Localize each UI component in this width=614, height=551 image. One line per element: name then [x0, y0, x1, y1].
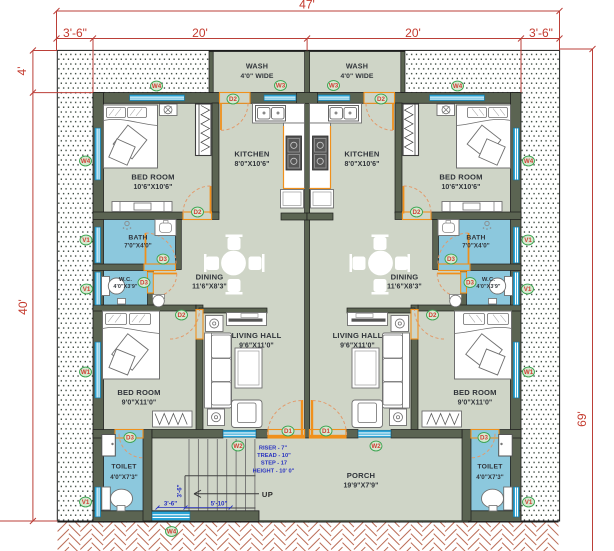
svg-text:W.C.: W.C. — [119, 277, 133, 283]
svg-text:D3: D3 — [159, 256, 167, 263]
svg-text:D3: D3 — [126, 435, 134, 442]
svg-text:W3: W3 — [329, 83, 339, 90]
svg-text:DINING: DINING — [196, 273, 224, 282]
svg-text:UP: UP — [262, 490, 273, 499]
svg-text:3'-6": 3'-6" — [63, 26, 87, 40]
svg-text:W4: W4 — [453, 83, 463, 90]
svg-text:4'0"X7'3": 4'0"X7'3" — [476, 474, 504, 481]
svg-text:10'6"X10'6": 10'6"X10'6" — [133, 184, 172, 191]
svg-text:W2: W2 — [371, 443, 381, 450]
svg-text:LIVING HALL: LIVING HALL — [232, 331, 282, 340]
svg-text:D3: D3 — [466, 280, 474, 287]
svg-text:D3: D3 — [447, 256, 455, 263]
svg-text:5'-10": 5'-10" — [211, 501, 228, 508]
svg-text:4'0"X3'9": 4'0"X3'9" — [476, 284, 501, 290]
svg-text:4'0"X3'9": 4'0"X3'9" — [113, 284, 138, 290]
svg-text:19'9"X7'9": 19'9"X7'9" — [343, 483, 378, 490]
svg-text:V1: V1 — [524, 286, 532, 293]
svg-text:W.C.: W.C. — [482, 277, 496, 283]
svg-text:9'0"X11'0": 9'0"X11'0" — [458, 400, 493, 407]
svg-text:4': 4' — [15, 67, 29, 76]
svg-text:7'0"X4'0": 7'0"X4'0" — [124, 243, 152, 250]
svg-text:4'0" WIDE: 4'0" WIDE — [341, 73, 374, 80]
svg-text:9'0"X11'0": 9'0"X11'0" — [122, 400, 157, 407]
svg-text:D2: D2 — [194, 209, 202, 216]
svg-text:V1: V1 — [524, 237, 532, 244]
svg-text:BATH: BATH — [128, 235, 147, 242]
svg-text:D2: D2 — [178, 312, 186, 319]
svg-text:7'0"X4'0": 7'0"X4'0" — [462, 243, 490, 250]
svg-text:RISER - 7": RISER - 7" — [259, 445, 288, 451]
svg-text:D2: D2 — [377, 96, 385, 103]
svg-text:W4: W4 — [524, 158, 534, 165]
svg-text:BED ROOM: BED ROOM — [117, 388, 160, 397]
svg-text:8'0"X10'6": 8'0"X10'6" — [344, 161, 379, 168]
svg-text:TOILET: TOILET — [111, 464, 137, 471]
svg-text:BED ROOM: BED ROOM — [453, 388, 496, 397]
svg-text:4'0"X7'3": 4'0"X7'3" — [110, 474, 138, 481]
svg-text:D3: D3 — [140, 280, 148, 287]
svg-text:V1: V1 — [82, 499, 90, 506]
svg-text:KITCHEN: KITCHEN — [234, 150, 269, 159]
svg-text:D3: D3 — [480, 435, 488, 442]
svg-text:D1: D1 — [284, 428, 292, 435]
svg-text:HEIGHT - 10' 0": HEIGHT - 10' 0" — [253, 468, 295, 474]
svg-text:W4: W4 — [81, 158, 91, 165]
svg-text:W3: W3 — [276, 83, 286, 90]
svg-text:W2: W2 — [233, 443, 243, 450]
svg-text:W1: W1 — [81, 369, 91, 376]
svg-text:PORCH: PORCH — [347, 471, 375, 480]
svg-text:LIVING HALL: LIVING HALL — [333, 331, 383, 340]
svg-text:W4: W4 — [167, 529, 177, 536]
svg-text:9'6"X11'0": 9'6"X11'0" — [340, 343, 375, 350]
svg-text:W4: W4 — [152, 83, 162, 90]
svg-text:V1: V1 — [83, 286, 91, 293]
svg-text:47': 47' — [299, 0, 315, 12]
svg-text:4'0" WIDE: 4'0" WIDE — [241, 73, 274, 80]
svg-text:V1: V1 — [525, 499, 533, 506]
svg-text:BATH: BATH — [466, 235, 485, 242]
svg-text:BED ROOM: BED ROOM — [439, 173, 482, 182]
svg-text:20': 20' — [405, 26, 421, 40]
svg-text:8'0"X10'6": 8'0"X10'6" — [234, 161, 269, 168]
svg-text:TOILET: TOILET — [477, 464, 503, 471]
svg-text:WASH: WASH — [346, 62, 368, 71]
svg-text:W1: W1 — [524, 369, 534, 376]
svg-text:3'-6": 3'-6" — [529, 26, 553, 40]
svg-text:D2: D2 — [413, 209, 421, 216]
svg-text:TREAD - 10": TREAD - 10" — [257, 453, 291, 459]
svg-text:69': 69' — [575, 411, 589, 427]
svg-text:9'6"X11'0": 9'6"X11'0" — [239, 343, 274, 350]
svg-text:40': 40' — [16, 299, 30, 315]
svg-text:WASH: WASH — [246, 62, 268, 71]
svg-text:DINING: DINING — [391, 273, 419, 282]
svg-text:D2: D2 — [429, 312, 437, 319]
svg-text:V1: V1 — [82, 237, 90, 244]
svg-text:KITCHEN: KITCHEN — [344, 150, 379, 159]
svg-text:D1: D1 — [322, 428, 330, 435]
svg-text:20': 20' — [192, 26, 208, 40]
svg-text:10'6"X10'6": 10'6"X10'6" — [441, 184, 480, 191]
svg-text:D2: D2 — [229, 96, 237, 103]
svg-text:11'6"X8'3": 11'6"X8'3" — [192, 284, 227, 291]
svg-text:3'-6": 3'-6" — [178, 484, 184, 497]
svg-text:3'-6": 3'-6" — [164, 501, 177, 508]
svg-text:11'6"X8'3": 11'6"X8'3" — [387, 284, 422, 291]
svg-text:STEP - 17: STEP - 17 — [261, 460, 287, 466]
svg-text:BED ROOM: BED ROOM — [131, 173, 174, 182]
